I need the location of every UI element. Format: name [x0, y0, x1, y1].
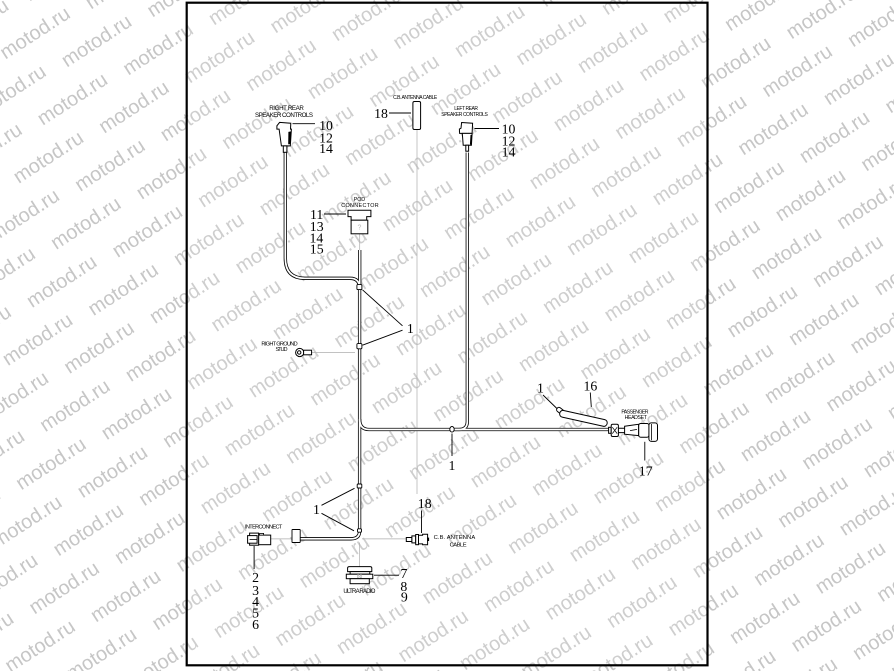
svg-text:16: 16: [584, 379, 598, 394]
svg-text:INTERCONNECT: INTERCONNECT: [245, 525, 283, 531]
svg-text:18: 18: [374, 106, 388, 121]
svg-text:SPEAKER CONTROLS: SPEAKER CONTROLS: [255, 112, 313, 119]
svg-text:STUD: STUD: [276, 347, 288, 353]
svg-text:1: 1: [313, 502, 320, 517]
svg-text:SPEAKER CONTROLS: SPEAKER CONTROLS: [441, 112, 488, 118]
svg-text:ULTRA RADIO: ULTRA RADIO: [343, 589, 375, 595]
svg-text:6: 6: [252, 617, 259, 632]
svg-text:CABLE: CABLE: [450, 543, 467, 549]
svg-text:?: ?: [358, 225, 362, 232]
svg-text:C.B. ANTENNA: C.B. ANTENNA: [434, 535, 476, 541]
svg-text:C.B. ANTENNA CABLE: C.B. ANTENNA CABLE: [393, 95, 438, 101]
svg-text:1: 1: [449, 458, 456, 473]
svg-text:88: 88: [357, 574, 363, 580]
svg-text:9: 9: [401, 590, 408, 605]
svg-text:HEADSET: HEADSET: [625, 415, 648, 421]
svg-text:15: 15: [310, 242, 324, 257]
svg-text:18: 18: [418, 496, 432, 511]
svg-text:1: 1: [407, 321, 414, 336]
svg-text:CONNECTOR: CONNECTOR: [341, 203, 379, 209]
svg-text:17: 17: [639, 463, 653, 478]
svg-text:1: 1: [537, 381, 544, 396]
svg-text:14: 14: [502, 144, 516, 159]
svg-text:14: 14: [319, 141, 333, 156]
svg-text:RIGHT REAR: RIGHT REAR: [269, 105, 304, 112]
svg-text:LEFT REAR: LEFT REAR: [454, 106, 478, 112]
